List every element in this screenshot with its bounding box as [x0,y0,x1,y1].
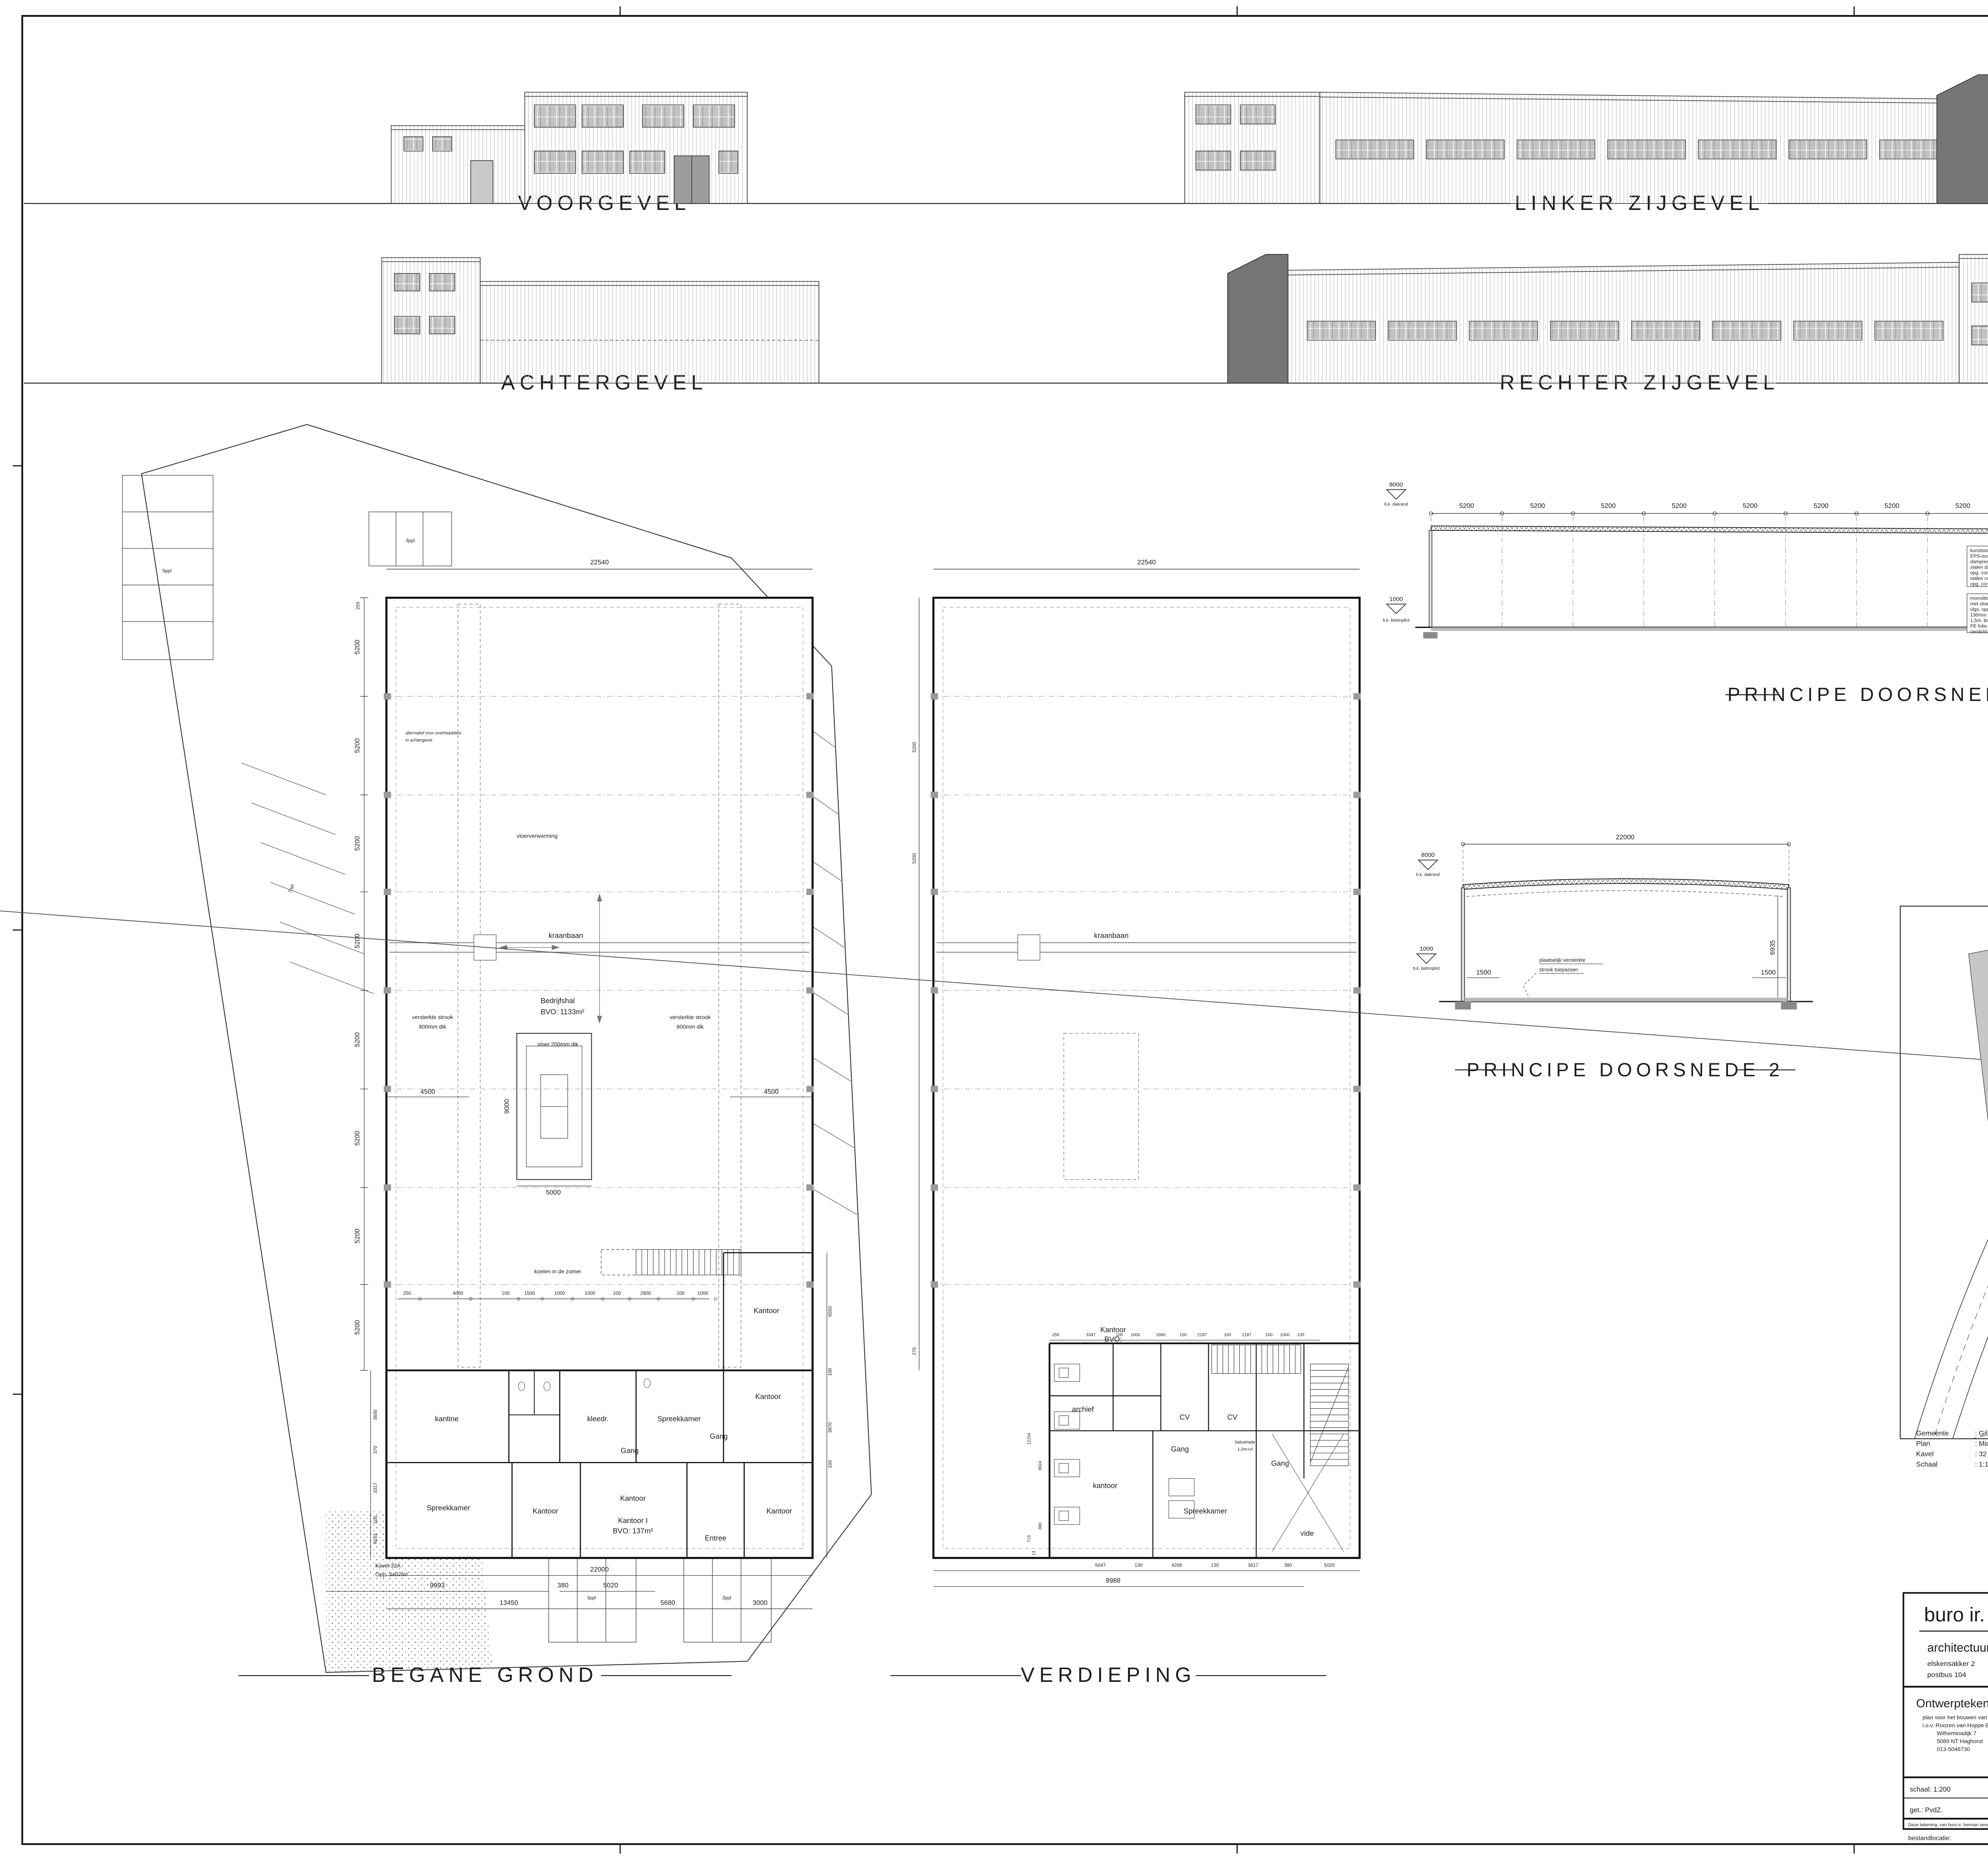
address-2: postbus 104 [1927,1671,1966,1679]
kavel-value: : 32 [1975,1450,1986,1458]
v-dimrow-value: 100 [1180,1333,1187,1338]
spec-line: opg. constructeur [1970,570,1988,576]
column [1353,792,1361,798]
s1-level-1000: 1000 [1390,596,1403,602]
section1-grid: 5200520052005200520052005200520052005200… [1429,496,1988,629]
hall-window [1875,321,1943,340]
v-bottom-dim: 130 [1211,1562,1219,1568]
column [931,1184,938,1191]
s1-level-betonplint: b.k. betonplint [1383,618,1409,623]
s2-dim-6935: 6935 [1769,940,1776,955]
v-dimrow-value: 250 [1052,1333,1060,1338]
column [1353,987,1361,994]
strook-label-1a: versterkte strook [412,1014,453,1020]
g-bot-3000: 3000 [753,1599,767,1606]
spec-line: met vloerverwarming [1970,601,1988,607]
parking-diagonal-left [242,763,374,994]
hall-window [1469,321,1538,340]
v-left-chain: 9924 [1038,1461,1043,1470]
drawing-sheet: VOORGEVEL LINKER ZIJGEVEL ACHTERGEVEL RE… [0,0,1988,1860]
parking-label-7ppl: 7ppl [287,883,295,894]
v-dimrow-value: 3347 [1086,1333,1096,1338]
ground-right-chain: 65501003870100 [827,1253,833,1558]
hall-window-band-left [1336,140,1988,159]
g-dimrow-value: 4000 [452,1291,463,1296]
s1-spec-roof: kunststof dakbedekking EPS-isolatie Rc >… [1967,546,1988,586]
section-1: 5200520052005200520052005200520052005200… [1383,481,1988,705]
column [1353,1086,1361,1092]
schaal-value: : 1:1000 [1975,1460,1988,1468]
s2-level-8000: 8000 [1421,852,1435,858]
room-kantine: kantine [435,1414,458,1423]
v-vide: vide [1301,1529,1314,1537]
room-entree: Entree [705,1534,726,1542]
g-dim-22540: 22540 [590,558,609,566]
elevation-rechter-zijgevel [1228,254,1988,383]
doc-type: Ontwerptekening [1916,1697,1988,1710]
g-right-chain: 3870 [827,1422,833,1433]
desc-1: plan voor het bouwen van een bedrijfshal… [1922,1714,1988,1721]
s2-dim-1500-r: 1500 [1761,969,1776,976]
spec-line: dampremmende folie [1970,559,1988,565]
first-floor-plan: 22540 kraanbaan Kantoor BVO: archief CV … [891,558,1361,1687]
v-dimrow-value: 100 [1116,1333,1123,1338]
g-dim-5200: 5200 [353,738,361,753]
plan-label: Plan [1916,1439,1930,1447]
elevation-achtergevel [382,258,819,383]
column [806,792,813,798]
column [384,1184,391,1191]
spec-line: kunststof dakbedekking [1970,548,1988,553]
g-bot-380: 380 [557,1581,569,1589]
hall-window [1388,321,1456,340]
spec-line: EPS-isolatie Rc > 6.0 [1970,553,1988,559]
room-kantoor-b1: Kantoor [533,1507,558,1515]
g-dim-250: 250 [355,602,361,610]
g-dim-5000: 5000 [546,1189,561,1196]
v-dimrow-value: 1680 [1156,1333,1166,1338]
s1-dim-5200: 5200 [1885,502,1899,509]
column [384,1086,391,1092]
building-outline-ground [386,598,813,1558]
s2-level-1000: 1000 [1420,946,1433,952]
v-kantoor: kantoor [1093,1481,1117,1489]
spec-line: 1,5m. breed langs zijkanten vloer [1970,618,1988,623]
g-left-chain: 3600 [373,1410,378,1420]
column [806,693,813,699]
column [1353,889,1361,895]
desc-2: i.o.v. Roozen van Hoppe Bauw & Ontwikkel… [1922,1722,1988,1729]
parking-label-3ppl-top: 3ppl [406,538,415,543]
gemeente-label: Gemeente [1916,1429,1949,1437]
g-dimrow-value: 250 [403,1291,411,1296]
hall-window [1550,321,1619,340]
column [384,693,391,699]
g-dimrow-value: 100 [613,1291,621,1296]
column [931,1281,938,1288]
v-dimrow-value: 100 [1224,1333,1231,1338]
v-cv-1: CV [1180,1413,1190,1421]
v-bottom-dim: 5020 [1324,1562,1335,1568]
desc-4: 5089 NT Haghorst [1937,1738,1983,1745]
g-kraanbaan-label: kraanbaan [549,931,583,940]
column [384,987,391,994]
strook-label-2b: 800mm dik [677,1023,704,1030]
column [806,1086,813,1092]
parking-label-3ppl-b1: 3ppl [587,1595,596,1600]
g-bvo: BVO: 1133m² [541,1008,584,1016]
room-spreekkamer-b: Spreekkamer [427,1503,470,1512]
file-location-label: bestandlocatie: [1908,1835,1951,1842]
room-kleedr: kleedr. [587,1414,609,1423]
g-dim-5200: 5200 [353,1131,361,1146]
g-vloerverwarming: vloerverwarming [517,833,558,839]
schaal-label: Schaal [1916,1460,1938,1468]
hall-window [1712,321,1781,340]
hall-window [1789,140,1867,159]
s2-note-2: strook toepassen [1539,967,1578,973]
v-gang-1: Gang [1171,1445,1189,1453]
room-gang-1: Gang [621,1446,639,1454]
strook-label-2a: versterkte strook [670,1014,711,1020]
disclaimer: Deze tekening, van buro ir. herman senge… [1908,1823,1988,1827]
g-dimrow-value: 100 [502,1291,510,1296]
plan-value: : Midden Brabant Poort [1975,1439,1988,1447]
section-2: 22000 8000 b.k. dakrand 6935 1000 b.k. b… [1413,833,1813,1081]
s2-note-1: plaatselijk versterkte [1539,957,1585,963]
g-right-chain: 6550 [827,1306,833,1317]
column [806,987,813,994]
v-spreekkamer: Spreekkamer [1184,1507,1227,1515]
v-dimrow-value: 2187 [1198,1333,1207,1338]
g-dim-5200: 5200 [353,836,361,850]
spec-line: vlgs. opg. constructeur [1970,607,1988,612]
s1-level-dakrand: b.k. dakrand [1384,502,1408,507]
v-dimrow-value: 135 [1297,1333,1305,1338]
room-kantoor-b2: Kantoor [620,1494,646,1502]
g-dimrow-value: 1500 [524,1291,535,1296]
g-dim-5200: 5200 [353,1032,361,1047]
v-left-chain: 713 [1027,1535,1032,1542]
v-side-chain: 270 [912,1347,917,1355]
label-begane-grond: BEGANE GROND [372,1664,598,1687]
g-dim-4500-l: 4500 [420,1088,435,1095]
v-cv-2: CV [1227,1413,1238,1421]
address-1: elskensakker 2 [1927,1660,1975,1668]
hall-window [1517,140,1595,159]
g-kavel-note-1: Kavel 32A [375,1562,401,1569]
room-gang-2: Gang [710,1432,728,1440]
column [1353,1281,1361,1288]
column [931,987,938,994]
room-kantoor1-bvo: BVO: 137m² [613,1526,653,1535]
cell-schaal: schaal: 1:200 [1910,1785,1950,1793]
s2-level-betonplint: b.k. betonplint [1413,966,1440,971]
v-balustrade-2: 1,0m+vl [1237,1447,1252,1452]
kavel-label: Kavel [1916,1450,1934,1458]
v-archief: archief [1072,1405,1094,1413]
label-doorsnede-2: PRINCIPE DOORSNEDE 2 [1467,1060,1784,1081]
g-right-chain: 100 [827,1368,833,1376]
elevation-voorgevel [391,92,747,204]
column [384,889,391,895]
room-spreekkamer-t: Spreekkamer [657,1414,701,1423]
g-left-chain: 370 [373,1446,378,1454]
v-balustrade-1: balustrade [1235,1440,1255,1445]
spec-line: PE folie [1970,623,1987,629]
spec-line: opg. constructeur [1970,581,1988,587]
hall-window [1426,140,1504,159]
room-kantoor-b3: Kantoor [767,1507,792,1515]
hall-window [1794,321,1862,340]
v-kraanbaan-label: kraanbaan [1094,931,1129,940]
column [1353,1184,1361,1191]
hall-window [1631,321,1700,340]
column [806,1281,813,1288]
parking-label-3ppl-b2: 3ppl [722,1595,731,1600]
g-bot-5020: 5020 [603,1581,618,1589]
s1-level-8000: 8000 [1390,481,1403,488]
g-dimrow-value: 1000 [697,1291,708,1296]
g-dimrow-value: 1000 [554,1291,565,1296]
v-side-chain: 5200 [912,853,917,864]
first-bottom-dims: 50471304206130361738050209988 [934,1562,1335,1586]
firm-name: buro ir. herman sengers [1924,1604,1988,1626]
gemeente-value: : Gilze-Rijen [1975,1429,1988,1437]
g-koelen: koelen in de zomer [534,1268,582,1275]
g-bot-13450: 13450 [499,1599,518,1606]
g-left-chain: 100 [373,1516,378,1524]
label-doorsnede-1: PRINCIPE DOORSNEDE 1 [1728,684,1988,705]
g-bot-22000: 22000 [590,1565,609,1573]
g-dim-5200: 5200 [353,934,361,948]
g-left-chain: 4033 [373,1534,378,1544]
v-bottom-dim: 3617 [1248,1562,1258,1568]
title-block: buro ir. herman sengers architectuur | d… [1903,1593,1988,1842]
s1-dim-5200: 5200 [1459,502,1474,509]
g-bot-5680: 5680 [660,1599,675,1606]
s2-dim-22000: 22000 [1616,833,1635,841]
g-dimrow-value: 1000 [584,1291,595,1296]
s1-spec-groundfloor: monolitisch afgewerkte betonvloer met vl… [1967,594,1988,634]
s1-dim-5200: 5200 [1743,502,1757,509]
room-kantoor-rw: Kantoor [754,1307,779,1315]
column [931,693,938,699]
g-dim-5200: 5200 [353,640,361,654]
g-dim-9000: 9000 [503,1099,511,1114]
v-left-chain: 13 [1032,1551,1037,1555]
s1-dim-5200: 5200 [1601,502,1616,509]
g-bedrijfshal: Bedrijfshal [541,996,575,1005]
spec-line: verdicht zandpakket [1970,629,1988,635]
v-bottom-dim: 380 [1284,1562,1292,1568]
parking-label-5ppl: 5ppl [163,568,172,573]
v-side-chain: 5200 [912,742,917,753]
hall-window [1698,140,1776,159]
g-dimrow-value: 2900 [640,1291,651,1296]
column [384,1281,391,1288]
strook-label-1b: 800mm dik [419,1023,447,1030]
column [931,792,938,798]
v-dimrow-value: 1000 [1280,1333,1290,1338]
g-kavel-note-2: Opp: 3407m² [375,1571,408,1577]
v-dimrow-value: 2187 [1242,1333,1252,1338]
v-dimrow-value: 1000 [1131,1333,1140,1338]
column [384,792,391,798]
s1-dim-5200: 5200 [1955,502,1970,509]
v-bottom-dim: 4206 [1171,1562,1182,1568]
v-dimrow-value: 100 [1266,1333,1273,1338]
room-kantoor-r2: Kantoor [755,1392,781,1400]
g-dimrow-value: 100 [677,1291,685,1296]
v-dim-22540: 22540 [1137,558,1156,566]
s1-dim-5200: 5200 [1672,502,1687,509]
spec-line: 130mm EPS-100 isolatie [1970,612,1988,618]
v-left-chain: 380 [1038,1522,1043,1530]
column [1353,693,1361,699]
elevation-linker-zijgevel [1185,75,1988,204]
g-right-chain: 100 [827,1460,833,1468]
spec-line: monolitisch afgewerkte betonvloer [1970,596,1988,601]
sheet-canvas: VOORGEVEL LINKER ZIJGEVEL ACHTERGEVEL RE… [0,0,1988,1860]
tagline-black: architectuur | design | [1927,1641,1988,1654]
s1-dim-5200: 5200 [1813,502,1828,509]
s1-dim-5200: 5200 [1530,502,1545,509]
g-left-chain: 3317 [373,1483,378,1493]
g-bot-9993: 9993 [430,1581,445,1589]
v-gang-2: Gang [1271,1459,1289,1467]
building-outline-first [934,598,1360,1558]
g-dim-5200: 5200 [353,1320,361,1335]
column [806,1184,813,1191]
room-kantoor1: Kantoor I [618,1516,648,1524]
desc-3: Wilheminadijk 7 [1937,1730,1976,1737]
column [931,1086,938,1092]
v-bottom-dim: 130 [1135,1562,1143,1568]
spec-line: stalen constructie vlgs. [1970,576,1988,581]
g-alt-2: in achtergevel [406,738,432,743]
g-dim-4500-r: 4500 [764,1088,779,1095]
g-dim-5200: 5200 [353,1229,361,1243]
hall-window [1336,140,1413,159]
cell-get: get.: PvdZ. [1910,1806,1943,1814]
label-verdieping: VERDIEPING [1021,1664,1196,1687]
column [931,889,938,895]
column [806,889,813,895]
v-bottom-9988: 9988 [1106,1577,1120,1584]
ground-floor-plan: 5ppl 3ppl 7ppl 3ppl 3ppl 520052005200520… [122,425,872,1687]
spec-line: stalen dakplaat vlgs. [1970,565,1988,570]
hall-window [1307,321,1376,340]
v-bottom-dim: 5047 [1095,1562,1106,1568]
s2-dim-1500-l: 1500 [1476,969,1491,976]
g-alt-1: alternatief voor overheaddeur [406,731,462,736]
v-left-chain: 12154 [1027,1433,1032,1445]
hall-window [1607,140,1685,159]
s2-level-dakrand: b.k. dakrand [1416,872,1440,877]
g-vloer200: vloer 200mm dik [538,1041,579,1047]
desc-5: 013-5046730 [1937,1746,1970,1753]
